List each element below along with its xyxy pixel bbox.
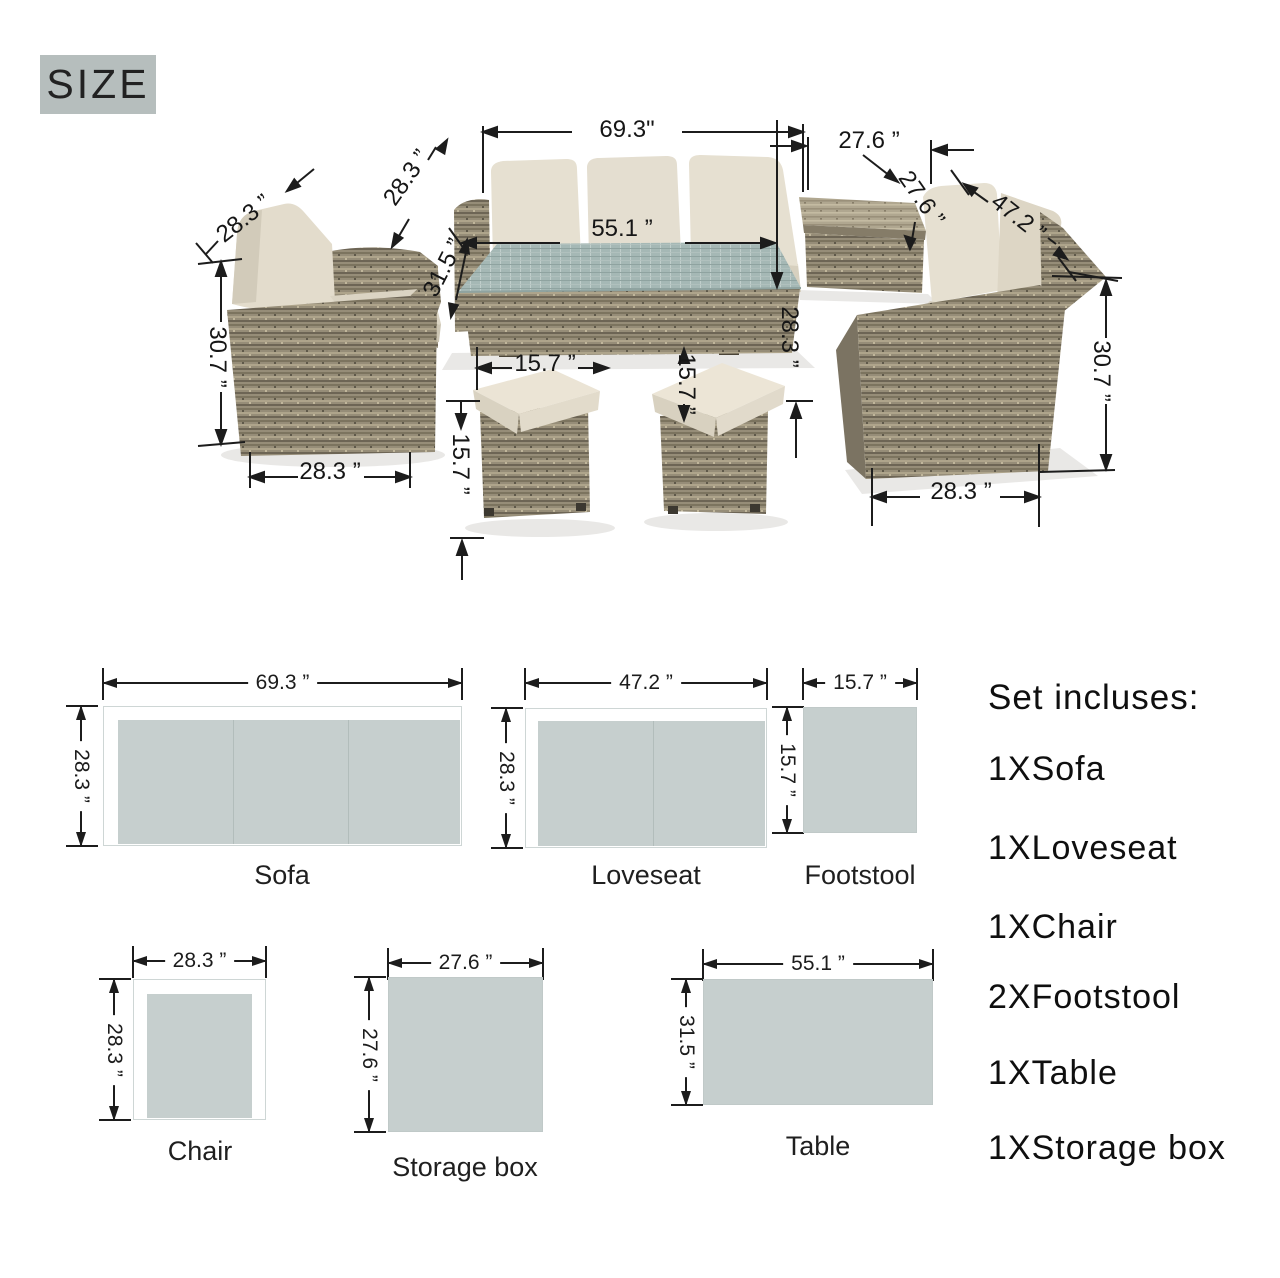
set-includes-title: Set incluses: <box>988 678 1199 718</box>
storage-schematic-width-dim: 27.6 ” <box>388 962 543 964</box>
chair-schematic-shape <box>133 979 266 1120</box>
dim-label-chair-width-bottom: 28.3 ” <box>299 458 360 486</box>
table-illustration <box>458 242 801 357</box>
sofa-schematic-width-label: 69.3 ” <box>248 671 318 695</box>
loveseat-schematic-width-label: 47.2 ” <box>611 671 681 695</box>
sofa-schematic-width-dim: 69.3 ” <box>103 682 462 684</box>
furniture-illustration <box>0 0 1280 640</box>
table-schematic-width-label: 55.1 ” <box>783 952 853 976</box>
dim-label-footstool-depth: 15.7 ” <box>672 353 700 414</box>
dim-label-loveseat-depth-bottom: 28.3 ” <box>930 478 991 506</box>
dim-label-table-height: 28.3 ” <box>775 306 803 367</box>
storage-schematic-depth-dim: 27.6 ” <box>368 977 370 1132</box>
sofa-schematic-depth-dim: 28.3 ” <box>80 706 82 846</box>
storage-box-illustration <box>799 197 926 293</box>
dim-label-chair-height: 30.7 ” <box>203 326 231 387</box>
table-schematic-width-dim: 55.1 ” <box>703 963 933 965</box>
chair-schematic-depth-label: 28.3 ” <box>102 1015 126 1085</box>
storage-schematic-width-label: 27.6 ” <box>431 951 501 975</box>
loveseat-schematic-shape <box>525 708 767 848</box>
footstool-schematic-depth-label: 15.7 ” <box>775 735 799 805</box>
set-includes-item-footstool: 2XFootstool <box>988 978 1180 1017</box>
dim-label-storage-width-top: 27.6 ” <box>838 127 899 155</box>
footstool-schematic-name: Footstool <box>804 860 915 891</box>
size-infographic: { "size_label": "SIZE", "colors": { "bad… <box>0 0 1280 1278</box>
loveseat-schematic-name: Loveseat <box>591 860 701 891</box>
loveseat-schematic-depth-dim: 28.3 ” <box>505 708 507 848</box>
footstool-schematic-shape <box>803 707 917 833</box>
table-schematic-name: Table <box>786 1131 851 1162</box>
footstool-schematic-depth-dim: 15.7 ” <box>786 707 788 833</box>
dim-label-sofa-width: 69.3" <box>599 116 654 144</box>
set-includes-item-loveseat: 1XLoveseat <box>988 829 1178 868</box>
chair-schematic-depth-dim: 28.3 ” <box>113 979 115 1120</box>
dim-label-table-width: 55.1 ” <box>591 215 652 243</box>
set-includes-item-table: 1XTable <box>988 1054 1118 1093</box>
table-schematic-depth-dim: 31.5 ” <box>685 979 687 1105</box>
storage-schematic-name: Storage box <box>392 1152 538 1183</box>
dim-label-loveseat-height: 30.7 ” <box>1087 340 1115 401</box>
chair-schematic-width-dim: 28.3 ” <box>133 960 266 962</box>
table-schematic-depth-label: 31.5 ” <box>674 1007 698 1077</box>
sofa-schematic-name: Sofa <box>254 860 310 891</box>
loveseat-schematic-width-dim: 47.2 ” <box>525 682 767 684</box>
dim-label-footstool-height: 15.7 ” <box>446 433 474 494</box>
footstool-schematic-width-label: 15.7 ” <box>825 671 895 695</box>
storage-schematic-shape <box>388 977 543 1132</box>
storage-schematic-depth-label: 27.6 ” <box>357 1020 381 1090</box>
dim-label-footstool-width: 15.7 ” <box>514 350 575 378</box>
sofa-schematic-shape <box>103 706 462 846</box>
footstool-schematic-width-dim: 15.7 ” <box>803 682 917 684</box>
set-includes-item-sofa: 1XSofa <box>988 750 1106 789</box>
table-schematic-shape <box>703 979 933 1105</box>
chair-illustration <box>227 203 441 456</box>
set-includes-item-chair: 1XChair <box>988 908 1118 947</box>
loveseat-schematic-depth-label: 28.3 ” <box>494 743 518 813</box>
sofa-schematic-depth-label: 28.3 ” <box>69 741 93 811</box>
chair-schematic-name: Chair <box>168 1136 233 1167</box>
set-includes-item-storage-box: 1XStorage box <box>988 1129 1226 1168</box>
chair-schematic-width-label: 28.3 ” <box>165 949 235 973</box>
footstool-1-illustration <box>473 369 600 518</box>
